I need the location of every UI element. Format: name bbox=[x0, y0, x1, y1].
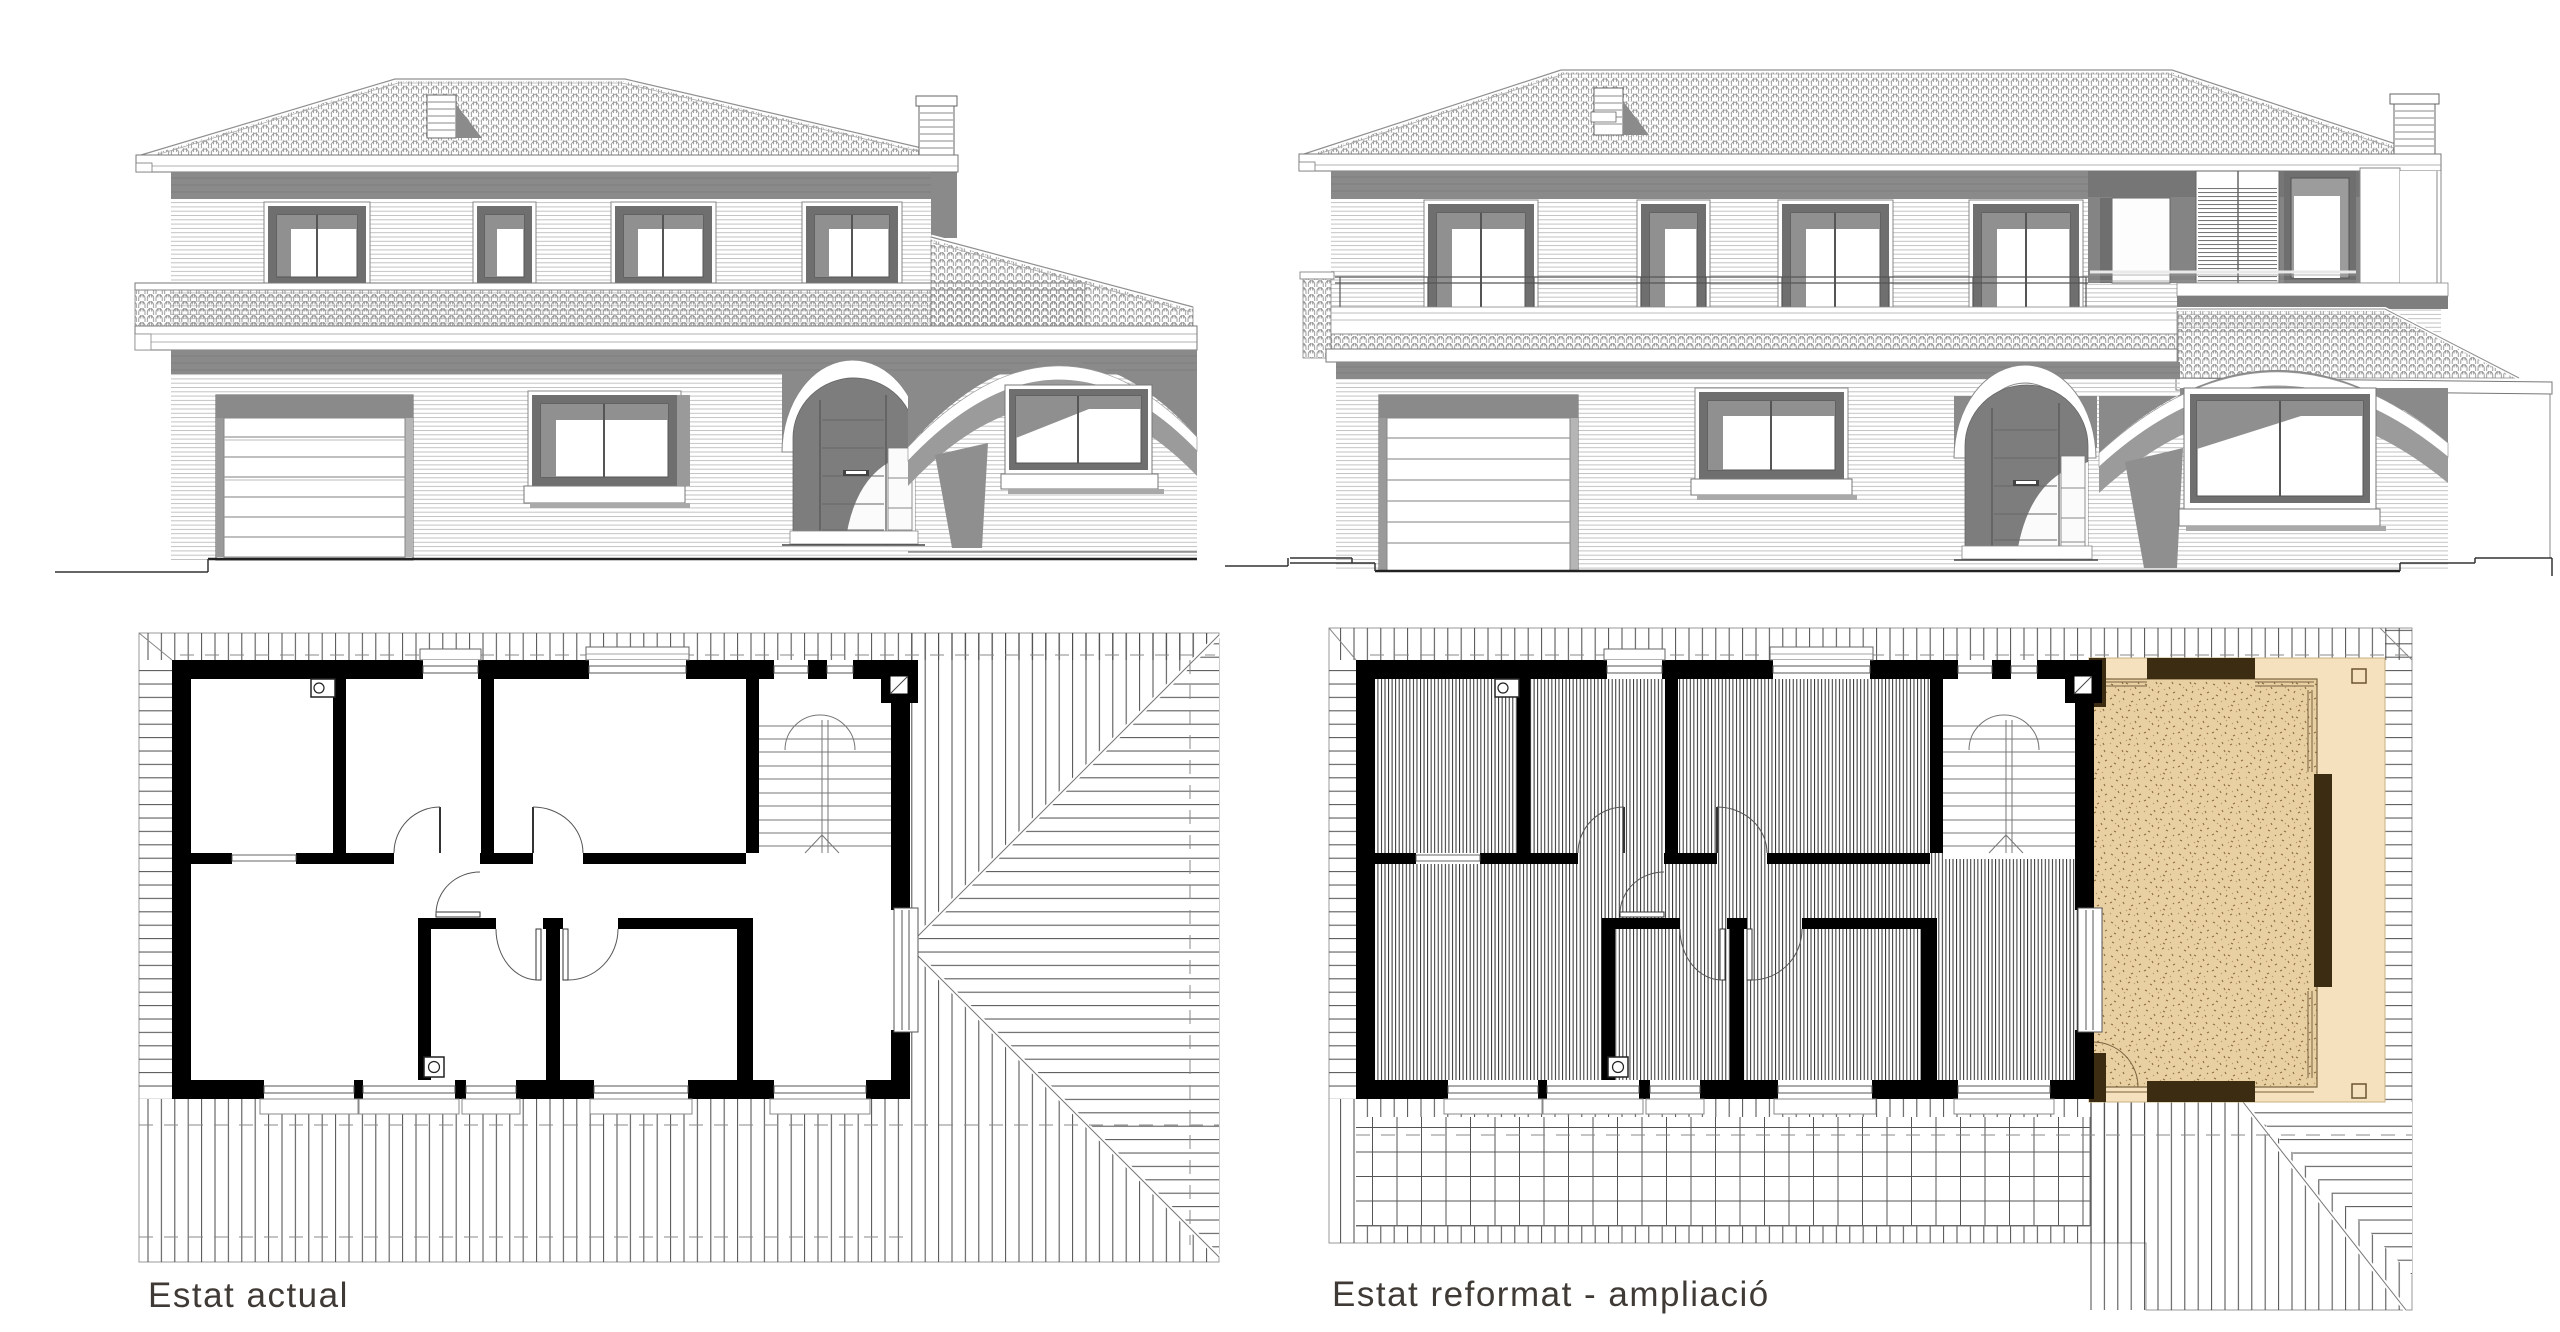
svg-text:Estat reformat - ampliació: Estat reformat - ampliació bbox=[1332, 1275, 1770, 1314]
svg-text:Estat actual: Estat actual bbox=[148, 1276, 349, 1315]
